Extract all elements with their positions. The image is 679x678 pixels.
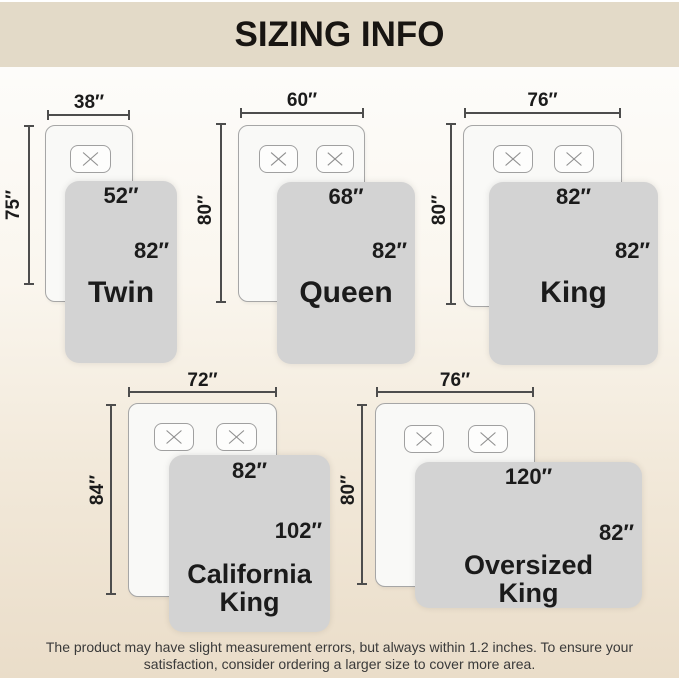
footer-note-line-2: satisfaction, consider ordering a larger… — [10, 656, 669, 673]
bed-length-measure-line — [28, 125, 30, 285]
sizing-info-page: SIZING INFO 38″ 75″ 52″ 82″ Twin 60″ 80″ — [0, 0, 679, 678]
bed-length-label: 80″ — [429, 180, 451, 240]
bed-name-label: King — [489, 277, 658, 309]
pillow-icon — [468, 425, 508, 453]
pillow-cross-icon — [317, 146, 353, 172]
page-title: SIZING INFO — [235, 15, 445, 55]
header: SIZING INFO — [0, 2, 679, 67]
pillow-cross-icon — [217, 424, 256, 450]
blanket-length-label: 82″ — [277, 238, 407, 264]
bed-length-measure-line — [361, 404, 363, 585]
pillow-icon — [554, 145, 594, 173]
pillow-icon — [259, 145, 298, 173]
pillow-cross-icon — [494, 146, 532, 172]
pillow-cross-icon — [155, 424, 193, 450]
blanket-length-label: 102″ — [169, 518, 322, 544]
blanket-width-label: 120″ — [415, 464, 642, 490]
bed-name-label: California King — [169, 560, 330, 617]
pillow-icon — [316, 145, 354, 173]
pillow-icon — [493, 145, 533, 173]
footer-note: The product may have slight measurement … — [10, 639, 669, 672]
pillow-icon — [404, 425, 444, 453]
pillow-cross-icon — [71, 146, 110, 172]
pillow-cross-icon — [469, 426, 507, 452]
bed-width-label: 76″ — [464, 90, 621, 112]
blanket-length-label: 82″ — [415, 520, 634, 546]
pillow-cross-icon — [555, 146, 593, 172]
bed-name-label: Twin — [65, 277, 177, 309]
bed-length-label: 80″ — [195, 180, 217, 240]
blanket-width-label: 82″ — [489, 184, 658, 210]
pillow-icon — [154, 423, 194, 451]
pillow-cross-icon — [405, 426, 443, 452]
bed-width-label: 60″ — [240, 90, 364, 112]
pillow-icon — [70, 145, 111, 173]
bed-length-measure-line — [110, 404, 112, 595]
blanket-width-label: 82″ — [169, 458, 330, 484]
pillow-cross-icon — [260, 146, 297, 172]
blanket-length-label: 82″ — [65, 238, 169, 264]
bed-width-measure-line — [47, 114, 130, 116]
pillow-icon — [216, 423, 257, 451]
bed-name-label: Queen — [277, 277, 415, 309]
bed-width-measure-line — [376, 391, 534, 393]
bed-length-label: 84″ — [87, 460, 109, 520]
bed-width-label: 38″ — [48, 92, 130, 114]
bed-length-measure-line — [220, 123, 222, 303]
bed-length-label: 75″ — [3, 175, 25, 235]
bed-name-label: Oversized King — [415, 551, 642, 608]
bed-length-label: 80″ — [338, 460, 360, 520]
bed-width-label: 72″ — [128, 370, 277, 392]
blanket-width-label: 68″ — [277, 184, 415, 210]
bed-width-measure-line — [128, 391, 277, 393]
blanket-width-label: 52″ — [65, 183, 177, 209]
footer-note-line-1: The product may have slight measurement … — [10, 639, 669, 656]
bed-length-measure-line — [450, 123, 452, 305]
blanket-length-label: 82″ — [489, 238, 650, 264]
bed-width-measure-line — [464, 112, 621, 114]
bed-width-label: 76″ — [376, 370, 534, 392]
bed-width-measure-line — [240, 112, 364, 114]
